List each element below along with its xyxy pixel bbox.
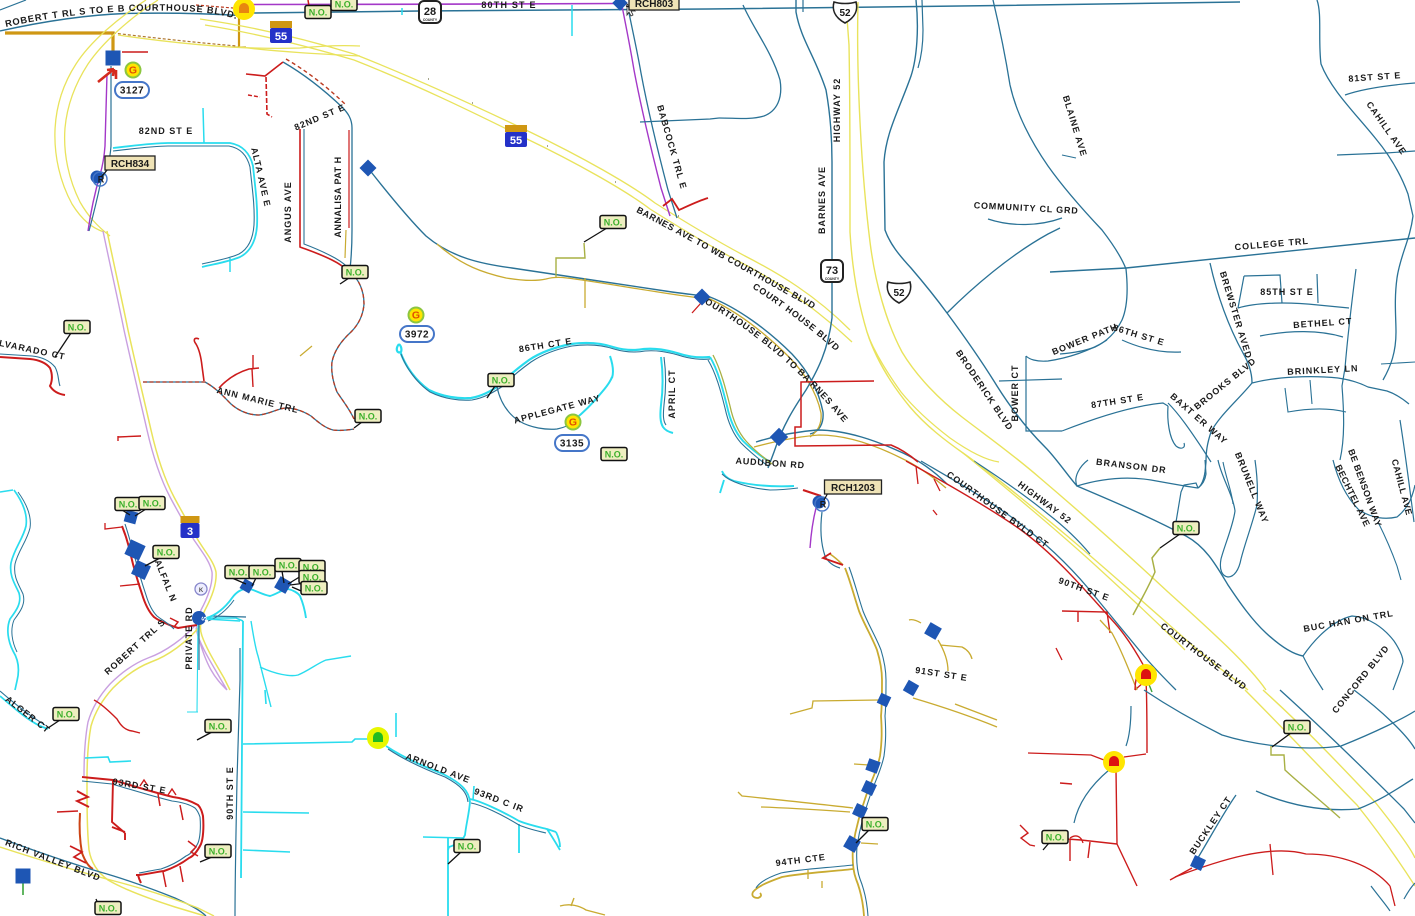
svg-text:3972: 3972 [405,330,429,341]
svg-text:N.O.: N.O. [143,499,162,509]
svg-text:G: G [569,417,577,429]
svg-text:RCH1203: RCH1203 [831,483,875,494]
svg-text:N.O.: N.O. [99,904,118,914]
svg-text:APRIL CT: APRIL CT [667,369,677,418]
svg-text:73: 73 [826,265,838,277]
svg-text:N.O.: N.O. [458,842,477,852]
svg-text:BARNES AVE: BARNES AVE [817,166,827,234]
svg-text:RCH803: RCH803 [635,0,674,10]
svg-text:82ND ST E: 82ND ST E [139,126,194,136]
svg-text:HIGHWAY 52: HIGHWAY 52 [832,78,842,143]
svg-text:R: R [820,500,827,510]
svg-text:N.O.: N.O. [229,568,248,578]
svg-text:N.O.: N.O. [346,268,365,278]
svg-text:90TH ST E: 90TH ST E [225,766,235,820]
svg-text:ANGUS AVE: ANGUS AVE [283,181,293,243]
svg-text:80TH ST E: 80TH ST E [481,0,536,10]
svg-text:3: 3 [187,526,193,538]
svg-text:N.O.: N.O. [119,500,138,510]
svg-text:K: K [199,588,204,594]
svg-text:85TH ST E: 85TH ST E [1260,287,1314,297]
svg-text:N.O.: N.O. [335,0,354,10]
svg-text:N.O.: N.O. [157,548,176,558]
svg-text:N.O.: N.O. [68,323,87,333]
svg-text:COUNTY: COUNTY [423,18,438,22]
svg-text:55: 55 [510,135,522,147]
svg-text:G: G [129,65,137,77]
svg-text:55: 55 [275,31,287,43]
svg-text:3127: 3127 [120,86,144,97]
svg-text:RCH834: RCH834 [111,159,150,170]
svg-text:BOWER CT: BOWER CT [1010,365,1020,422]
svg-text:3135: 3135 [560,439,584,450]
svg-text:N.O.: N.O. [1288,723,1307,733]
svg-text:COUNTY: COUNTY [825,277,840,281]
svg-text:N.O.: N.O. [305,584,324,594]
svg-text:N.O.: N.O. [279,561,298,571]
svg-text:N.O.: N.O. [57,710,76,720]
svg-text:52: 52 [893,288,905,299]
svg-text:G: G [412,310,420,322]
svg-text:52: 52 [839,8,851,19]
svg-text:N.O.: N.O. [492,376,511,386]
svg-text:N.O.: N.O. [605,450,624,460]
svg-text:28: 28 [424,6,436,18]
svg-text:N.O.: N.O. [253,568,272,578]
svg-text:N.O.: N.O. [866,820,885,830]
svg-text:N.O.: N.O. [309,8,328,18]
svg-text:N.O.: N.O. [1046,833,1065,843]
svg-text:N.O.: N.O. [604,218,623,228]
svg-text:N.O.: N.O. [209,847,228,857]
svg-text:N.O.: N.O. [1177,524,1196,534]
svg-text:ANNALISA PAT H: ANNALISA PAT H [333,156,343,237]
svg-text:N.O.: N.O. [209,722,228,732]
svg-text:N.O.: N.O. [359,412,378,422]
